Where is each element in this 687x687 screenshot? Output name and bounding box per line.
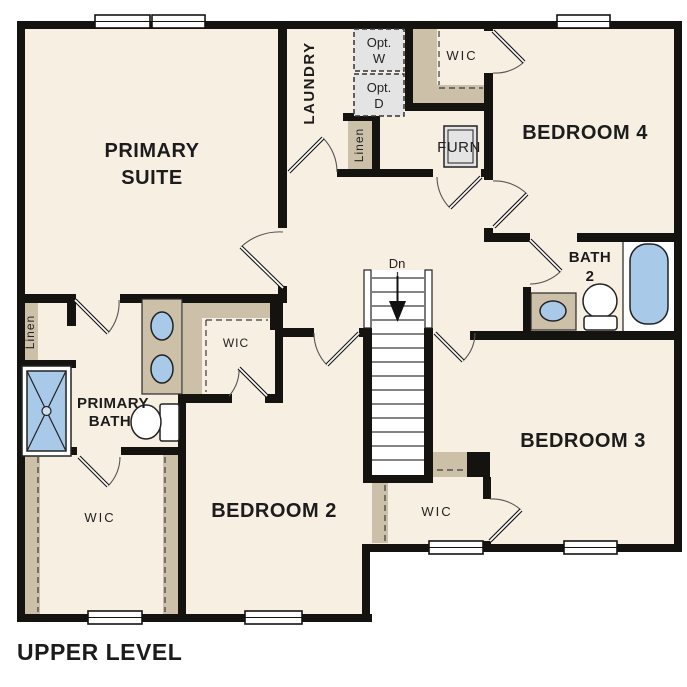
stair-railing xyxy=(425,270,432,328)
primary-suite-label: PRIMARY xyxy=(105,140,200,162)
page-title: UPPER LEVEL xyxy=(17,639,182,665)
window xyxy=(429,541,483,554)
wic-bedroom2-label: WIC xyxy=(223,336,249,350)
bathtub xyxy=(623,242,674,331)
bath2-label: 2 xyxy=(586,268,595,285)
sink xyxy=(151,355,173,383)
sink xyxy=(151,312,173,340)
building-footprint xyxy=(17,21,682,622)
opt-washer-label: W xyxy=(373,51,386,66)
wic-b3-shelf xyxy=(372,483,388,543)
opt-washer-label: Opt. xyxy=(367,35,392,50)
bedroom3-label: BEDROOM 3 xyxy=(520,430,646,452)
linen-center-label: Linen xyxy=(352,128,366,162)
bath2-label: BATH xyxy=(569,249,612,266)
primary-bath-label: BATH xyxy=(89,413,132,430)
furnace-label: FURN xyxy=(437,139,481,156)
wic-b3-shelf xyxy=(433,452,467,477)
window xyxy=(564,541,617,554)
primary-suite-label: SUITE xyxy=(121,167,182,189)
primary-bath-label: PRIMARY xyxy=(77,395,149,412)
sink xyxy=(540,301,566,321)
chase xyxy=(467,452,490,477)
wic-bedroom3-label: WIC xyxy=(421,504,452,519)
wic-bedroom4-label: WIC xyxy=(446,48,477,63)
toilet xyxy=(583,284,617,330)
window xyxy=(88,611,142,624)
wic-primary-label: WIC xyxy=(84,510,115,525)
floor-plan-drawing: PRIMARY SUITE LAUNDRY Opt. W Opt. D WIC … xyxy=(0,0,687,687)
laundry-label: LAUNDRY xyxy=(301,41,318,124)
window xyxy=(152,15,205,28)
opt-dryer-label: Opt. xyxy=(367,80,392,95)
opt-dryer-label: D xyxy=(374,96,383,111)
wic-b2-shelf xyxy=(183,303,202,394)
bedroom2-label: BEDROOM 2 xyxy=(211,500,337,522)
shower-drain xyxy=(42,407,51,416)
window xyxy=(95,15,150,28)
linen-left-label: Linen xyxy=(23,315,37,349)
floor-plan-page: PRIMARY SUITE LAUNDRY Opt. W Opt. D WIC … xyxy=(0,0,687,687)
stair-railing xyxy=(364,270,371,328)
window xyxy=(557,15,610,28)
window xyxy=(245,611,302,624)
double-vanity xyxy=(142,299,182,394)
shower xyxy=(22,366,71,456)
vanity xyxy=(531,293,576,330)
bedroom4-label: BEDROOM 4 xyxy=(522,122,648,144)
stairs-down-label: Dn xyxy=(389,256,406,271)
